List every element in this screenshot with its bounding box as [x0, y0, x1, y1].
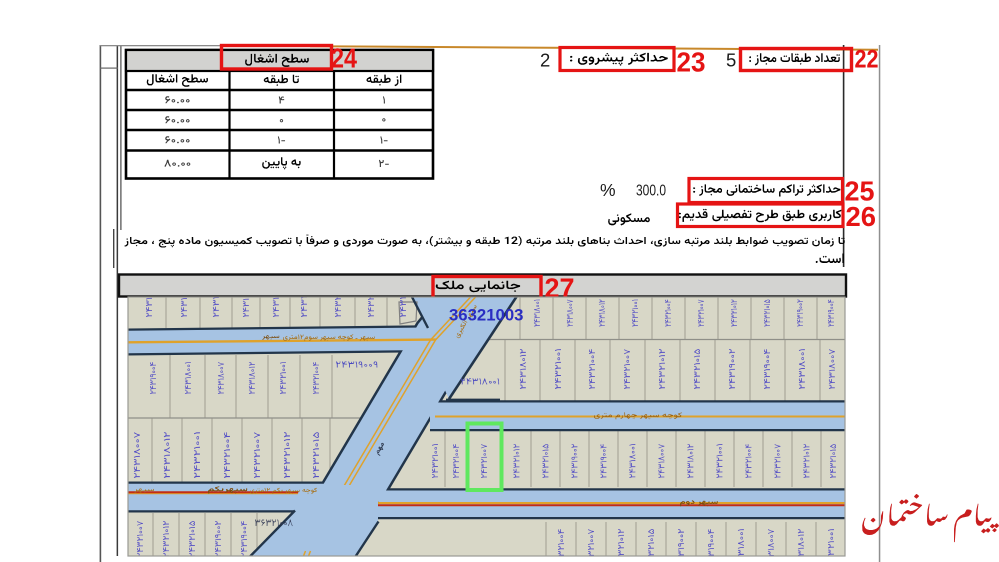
svg-text:23: 23	[677, 47, 706, 78]
svg-text:300.0: 300.0	[636, 183, 666, 200]
svg-text:2: 2	[540, 50, 550, 71]
svg-text:24: 24	[331, 43, 357, 74]
svg-text:26: 26	[846, 201, 877, 232]
svg-text:36321003: 36321003	[449, 307, 524, 325]
svg-text:5: 5	[726, 50, 736, 71]
svg-text:%: %	[600, 180, 616, 200]
svg-text:22: 22	[855, 46, 879, 74]
